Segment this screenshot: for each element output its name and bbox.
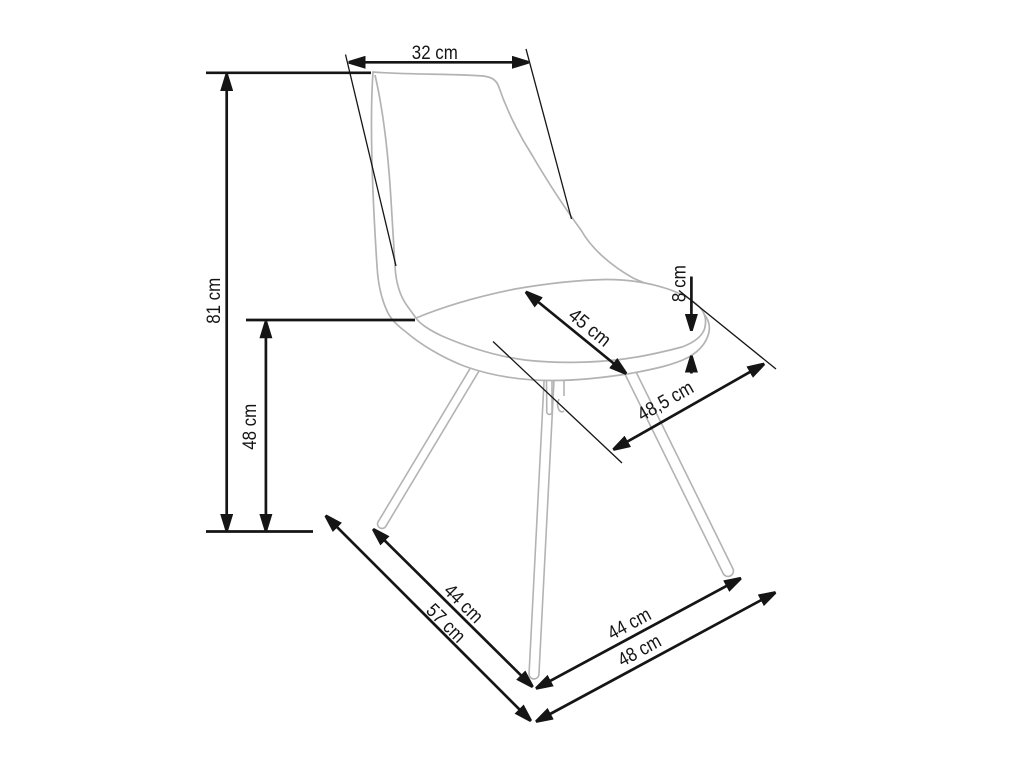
svg-text:81 cm: 81 cm [203,278,225,324]
svg-text:32 cm: 32 cm [412,42,458,64]
svg-text:48 cm: 48 cm [239,404,261,450]
